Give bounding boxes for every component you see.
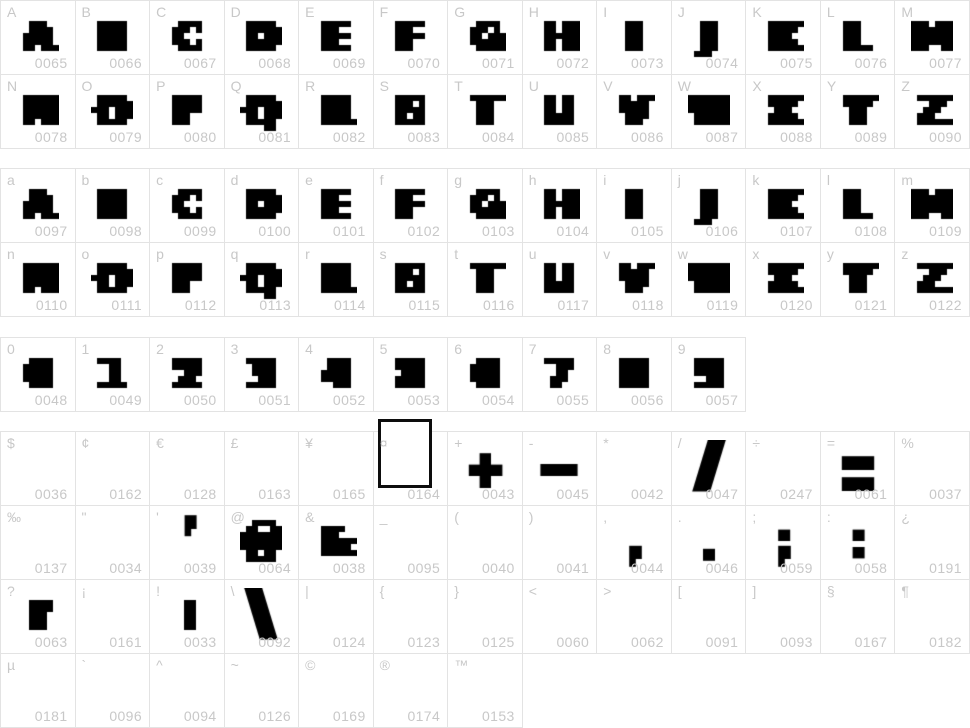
unicode-code-label: 0036 <box>35 486 68 502</box>
unicode-code-label: 0137 <box>35 560 68 576</box>
unicode-code-label: 0094 <box>184 708 217 724</box>
glyph-row: ?0063¡0161!0033\0092|0124{0123}0125<0060… <box>1 580 970 654</box>
notdef-box-icon <box>378 419 432 488</box>
unicode-code-label: 0043 <box>482 486 515 502</box>
glyph-cell-0163: £0163 <box>225 432 300 506</box>
character-label: b <box>82 171 90 189</box>
glyph-cell-0124: |0124 <box>299 580 374 654</box>
character-label: ‰ <box>7 508 21 526</box>
character-label: 3 <box>231 340 239 358</box>
glyph-row: $0036¢0162€0128£0163¥0165¤0164+0043-0045… <box>1 432 970 506</box>
glyph-cell-0104: h0104 <box>523 169 598 243</box>
character-label: € <box>156 434 164 452</box>
glyph-cell-0126: ~0126 <box>225 654 300 728</box>
glyph-cell-0065: A0065 <box>1 1 76 75</box>
unicode-code-label: 0153 <box>482 708 515 724</box>
glyph-group-symbols: $0036¢0162€0128£0163¥0165¤0164+0043-0045… <box>0 431 970 728</box>
glyph-cell-0088: X0088 <box>746 75 821 149</box>
unicode-code-label: 0128 <box>184 486 217 502</box>
unicode-code-label: 0046 <box>706 560 739 576</box>
character-label: j <box>678 171 681 189</box>
unicode-code-label: 0114 <box>334 297 366 313</box>
glyph-cell-0191: ¿0191 <box>895 506 970 580</box>
glyph-group-digits: 0004810049200503005140052500536005470055… <box>0 337 746 412</box>
glyph-cell-0067: C0067 <box>150 1 225 75</box>
character-label: n <box>7 245 15 263</box>
unicode-code-label: 0182 <box>929 634 962 650</box>
character-label: T <box>454 77 463 95</box>
glyph-cell-0048: 00048 <box>1 338 76 412</box>
character-label: e <box>305 171 313 189</box>
glyph-cell-0040: (0040 <box>448 506 523 580</box>
character-label: % <box>901 434 913 452</box>
character-label: f <box>380 171 384 189</box>
unicode-code-label: 0070 <box>407 55 440 71</box>
character-label: - <box>529 434 534 452</box>
unicode-code-label: 0163 <box>258 486 291 502</box>
character-label: R <box>305 77 315 95</box>
character-label: w <box>678 245 688 263</box>
glyph-cell-0051: 30051 <box>225 338 300 412</box>
character-label: a <box>7 171 15 189</box>
character-label: 9 <box>678 340 686 358</box>
glyph-cell-0114: r0114 <box>299 243 374 317</box>
unicode-code-label: 0104 <box>557 223 590 239</box>
glyph-cell-0079: O0079 <box>76 75 151 149</box>
unicode-code-label: 0041 <box>557 560 590 576</box>
character-label: S <box>380 77 389 95</box>
character-label: . <box>678 508 682 526</box>
unicode-code-label: 0054 <box>482 392 515 408</box>
character-label: { <box>380 582 385 600</box>
character-label: ™ <box>454 656 468 674</box>
character-label: N <box>7 77 17 95</box>
glyph-cell-0110: n0110 <box>1 243 76 317</box>
unicode-code-label: 0092 <box>258 634 291 650</box>
character-label: E <box>305 3 314 21</box>
glyph-cell-0116: t0116 <box>448 243 523 317</box>
character-label: = <box>827 434 835 452</box>
glyph-cell-0042: *0042 <box>597 432 672 506</box>
glyph-cell-0174: ®0174 <box>374 654 449 728</box>
font-character-map-page: { "page": { "background": "#ffffff", "bo… <box>0 0 970 727</box>
character-label: 8 <box>603 340 611 358</box>
character-label: r <box>305 245 310 263</box>
unicode-code-label: 0077 <box>929 55 962 71</box>
glyph-cell-0070: F0070 <box>374 1 449 75</box>
character-label: ~ <box>231 656 239 674</box>
unicode-code-label: 0090 <box>929 129 962 145</box>
unicode-code-label: 0045 <box>557 486 590 502</box>
character-label: x <box>752 245 759 263</box>
character-label: h <box>529 171 537 189</box>
glyph-cell-0107: k0107 <box>746 169 821 243</box>
glyph-cell-0092: \0092 <box>225 580 300 654</box>
character-label: F <box>380 3 389 21</box>
character-label: 6 <box>454 340 462 358</box>
unicode-code-label: 0167 <box>855 634 888 650</box>
glyph-cell-0087: W0087 <box>672 75 747 149</box>
unicode-code-label: 0066 <box>109 55 142 71</box>
character-label: * <box>603 434 608 452</box>
glyph-cell-0099: c0099 <box>150 169 225 243</box>
character-label: " <box>82 508 87 526</box>
glyph-cell-0105: i0105 <box>597 169 672 243</box>
glyph-cell-0128: €0128 <box>150 432 225 506</box>
glyph-cell-0121: y0121 <box>821 243 896 317</box>
glyph-cell-0059: ;0059 <box>746 506 821 580</box>
unicode-code-label: 0052 <box>333 392 366 408</box>
glyph-cell-0058: :0058 <box>821 506 896 580</box>
unicode-code-label: 0067 <box>184 55 217 71</box>
unicode-code-label: 0247 <box>780 486 813 502</box>
character-map: A0065B0066C0067D0068E0069F0070G0071H0072… <box>0 0 970 728</box>
glyph-cell-0074: J0074 <box>672 1 747 75</box>
unicode-code-label: 0100 <box>258 223 291 239</box>
unicode-code-label: 0033 <box>184 634 217 650</box>
glyph-group-lowercase: a0097b0098c0099d0100e0101f0102g0103h0104… <box>0 168 970 317</box>
unicode-code-label: 0125 <box>482 634 515 650</box>
unicode-code-label: 0065 <box>35 55 68 71</box>
unicode-code-label: 0115 <box>408 297 440 313</box>
character-label: M <box>901 3 913 21</box>
glyph-cell-0084: T0084 <box>448 75 523 149</box>
unicode-code-label: 0050 <box>184 392 217 408</box>
character-label: l <box>827 171 830 189</box>
unicode-code-label: 0123 <box>407 634 440 650</box>
character-label: A <box>7 3 16 21</box>
character-label: ¤ <box>380 434 388 452</box>
glyph-row: n0110o0111p0112q0113r0114s0115t0116u0117… <box>1 243 970 317</box>
unicode-code-label: 0098 <box>109 223 142 239</box>
glyph-cell-0041: )0041 <box>523 506 598 580</box>
glyph-cell-0082: R0082 <box>299 75 374 149</box>
unicode-code-label: 0059 <box>780 560 813 576</box>
glyph-cell-0113: q0113 <box>225 243 300 317</box>
glyph-cell-0093: ]0093 <box>746 580 821 654</box>
character-label: p <box>156 245 164 263</box>
character-label: £ <box>231 434 239 452</box>
unicode-code-label: 0099 <box>184 223 217 239</box>
character-label: | <box>305 582 309 600</box>
character-label: X <box>752 77 761 95</box>
character-label: H <box>529 3 539 21</box>
glyph-cell-0052: 40052 <box>299 338 374 412</box>
character-label: ® <box>380 656 390 674</box>
glyph-cell-0080: P0080 <box>150 75 225 149</box>
glyph-cell-0112: p0112 <box>150 243 225 317</box>
glyph-cell-0161: ¡0161 <box>76 580 151 654</box>
character-label: , <box>603 508 607 526</box>
character-label: : <box>827 508 831 526</box>
character-label: ) <box>529 508 534 526</box>
glyph-cell-0247: ÷0247 <box>746 432 821 506</box>
glyph-cell-0077: M0077 <box>895 1 970 75</box>
unicode-code-label: 0082 <box>333 129 366 145</box>
character-label: ¡ <box>82 582 87 600</box>
unicode-code-label: 0108 <box>855 223 888 239</box>
glyph-cell-0118: v0118 <box>597 243 672 317</box>
character-label: o <box>82 245 90 263</box>
character-label: U <box>529 77 539 95</box>
glyph-cell-0096: `0096 <box>76 654 151 728</box>
glyph-cell-0091: [0091 <box>672 580 747 654</box>
glyph-cell-0111: o0111 <box>76 243 151 317</box>
unicode-code-label: 0106 <box>706 223 739 239</box>
glyph-cell-0039: '0039 <box>150 506 225 580</box>
character-label: ' <box>156 508 159 526</box>
glyph-cell-0069: E0069 <box>299 1 374 75</box>
glyph-cell-0044: ,0044 <box>597 506 672 580</box>
character-label: q <box>231 245 239 263</box>
unicode-code-label: 0116 <box>483 297 515 313</box>
character-label: z <box>901 245 908 263</box>
glyph-cell-0071: G0071 <box>448 1 523 75</box>
character-label: + <box>454 434 462 452</box>
glyph-cell-0081: Q0081 <box>225 75 300 149</box>
glyph-cell-0057: 90057 <box>672 338 747 412</box>
character-label: µ <box>7 656 15 674</box>
unicode-code-label: 0051 <box>258 392 291 408</box>
glyph-cell-0115: s0115 <box>374 243 449 317</box>
glyph-cell-0066: B0066 <box>76 1 151 75</box>
unicode-code-label: 0174 <box>407 708 440 724</box>
glyph-cell-0054: 60054 <box>448 338 523 412</box>
unicode-code-label: 0071 <box>482 55 515 71</box>
unicode-code-label: 0076 <box>855 55 888 71</box>
unicode-code-label: 0044 <box>631 560 664 576</box>
character-label: Z <box>901 77 910 95</box>
unicode-code-label: 0112 <box>185 297 217 313</box>
unicode-code-label: 0069 <box>333 55 366 71</box>
unicode-code-label: 0062 <box>631 634 664 650</box>
character-label: J <box>678 3 685 21</box>
unicode-code-label: 0164 <box>407 486 440 502</box>
unicode-code-label: 0058 <box>855 560 888 576</box>
character-label: D <box>231 3 241 21</box>
glyph-cell-0153: ™0153 <box>448 654 523 728</box>
character-label: ¿ <box>901 508 910 526</box>
glyph-cell-0103: g0103 <box>448 169 523 243</box>
character-label: d <box>231 171 239 189</box>
glyph-cell-0053: 50053 <box>374 338 449 412</box>
unicode-code-label: 0073 <box>631 55 664 71</box>
character-label: c <box>156 171 163 189</box>
character-label: W <box>678 77 691 95</box>
unicode-code-label: 0048 <box>35 392 68 408</box>
character-label: O <box>82 77 93 95</box>
character-label: $ <box>7 434 15 452</box>
glyph-cell-0167: §0167 <box>821 580 896 654</box>
glyph-row: a0097b0098c0099d0100e0101f0102g0103h0104… <box>1 169 970 243</box>
glyph-cell-0098: b0098 <box>76 169 151 243</box>
unicode-code-label: 0056 <box>631 392 664 408</box>
character-label: ¥ <box>305 434 313 452</box>
unicode-code-label: 0042 <box>631 486 664 502</box>
glyph-cell-0060: <0060 <box>523 580 598 654</box>
glyph-cell-0061: =0061 <box>821 432 896 506</box>
character-label: i <box>603 171 606 189</box>
unicode-code-label: 0119 <box>707 297 739 313</box>
character-label: @ <box>231 508 245 526</box>
glyph-cell-0043: +0043 <box>448 432 523 506</box>
unicode-code-label: 0055 <box>557 392 590 408</box>
glyph-cell-0169: ©0169 <box>299 654 374 728</box>
unicode-code-label: 0096 <box>109 708 142 724</box>
unicode-code-label: 0093 <box>780 634 813 650</box>
glyph-cell-0033: !0033 <box>150 580 225 654</box>
character-label: ` <box>82 656 87 674</box>
glyph-cell-0049: 10049 <box>76 338 151 412</box>
glyph-cell-0090: Z0090 <box>895 75 970 149</box>
glyph-cell-0106: j0106 <box>672 169 747 243</box>
glyph-cell-0036: $0036 <box>1 432 76 506</box>
glyph-cell-0089: Y0089 <box>821 75 896 149</box>
unicode-code-label: 0034 <box>109 560 142 576</box>
glyph-cell-0034: "0034 <box>76 506 151 580</box>
unicode-code-label: 0113 <box>259 297 291 313</box>
character-label: V <box>603 77 612 95</box>
unicode-code-label: 0105 <box>631 223 664 239</box>
glyph-cell-0086: V0086 <box>597 75 672 149</box>
unicode-code-label: 0191 <box>929 560 962 576</box>
character-label: [ <box>678 582 682 600</box>
unicode-code-label: 0072 <box>557 55 590 71</box>
character-label: ? <box>7 582 15 600</box>
glyph-cell-0055: 70055 <box>523 338 598 412</box>
glyph-cell-0162: ¢0162 <box>76 432 151 506</box>
unicode-code-label: 0074 <box>706 55 739 71</box>
glyph-cell-0076: L0076 <box>821 1 896 75</box>
character-label: v <box>603 245 610 263</box>
character-label: Q <box>231 77 242 95</box>
unicode-code-label: 0040 <box>482 560 515 576</box>
character-label: Y <box>827 77 836 95</box>
character-label: C <box>156 3 166 21</box>
unicode-code-label: 0089 <box>855 129 888 145</box>
glyph-cell-0109: m0109 <box>895 169 970 243</box>
character-label: \ <box>231 582 235 600</box>
character-label: t <box>454 245 458 263</box>
glyph-cell-0119: w0119 <box>672 243 747 317</box>
glyph-cell-0123: {0123 <box>374 580 449 654</box>
character-label: > <box>603 582 611 600</box>
character-label: K <box>752 3 761 21</box>
glyph-cell-0102: f0102 <box>374 169 449 243</box>
glyph-cell-0164: ¤0164 <box>374 432 449 506</box>
glyph-cell-0068: D0068 <box>225 1 300 75</box>
glyph-cell-0101: e0101 <box>299 169 374 243</box>
character-label: § <box>827 582 835 600</box>
glyph-cell-0094: ^0094 <box>150 654 225 728</box>
unicode-code-label: 0110 <box>36 297 68 313</box>
character-label: 5 <box>380 340 388 358</box>
unicode-code-label: 0053 <box>407 392 440 408</box>
glyph-cell-0182: ¶0182 <box>895 580 970 654</box>
character-label: 2 <box>156 340 164 358</box>
character-label: 0 <box>7 340 15 358</box>
glyph-cell-0108: l0108 <box>821 169 896 243</box>
character-label: B <box>82 3 91 21</box>
glyph-row: ‰0137"0034'0039@0064&0038_0095(0040)0041… <box>1 506 970 580</box>
unicode-code-label: 0081 <box>258 129 291 145</box>
unicode-code-label: 0111 <box>111 297 142 313</box>
unicode-code-label: 0087 <box>706 129 739 145</box>
character-label: I <box>603 3 607 21</box>
character-label: s <box>380 245 387 263</box>
character-label: < <box>529 582 537 600</box>
glyph-cell-0095: _0095 <box>374 506 449 580</box>
unicode-code-label: 0120 <box>780 297 813 313</box>
glyph-cell-0062: >0062 <box>597 580 672 654</box>
unicode-code-label: 0080 <box>184 129 217 145</box>
glyph-cell-0122: z0122 <box>895 243 970 317</box>
character-label: ¢ <box>82 434 90 452</box>
unicode-code-label: 0109 <box>929 223 962 239</box>
character-label: L <box>827 3 835 21</box>
unicode-code-label: 0085 <box>557 129 590 145</box>
glyph-cell-0181: µ0181 <box>1 654 76 728</box>
character-label: _ <box>380 508 388 526</box>
unicode-code-label: 0107 <box>780 223 813 239</box>
unicode-code-label: 0037 <box>929 486 962 502</box>
character-label: 7 <box>529 340 537 358</box>
unicode-code-label: 0047 <box>706 486 739 502</box>
character-label: ^ <box>156 656 163 674</box>
character-label: P <box>156 77 165 95</box>
unicode-code-label: 0181 <box>35 708 68 724</box>
unicode-code-label: 0088 <box>780 129 813 145</box>
glyph-cell-0125: }0125 <box>448 580 523 654</box>
unicode-code-label: 0095 <box>407 560 440 576</box>
character-label: & <box>305 508 314 526</box>
unicode-code-label: 0038 <box>333 560 366 576</box>
character-label: } <box>454 582 459 600</box>
glyph-group-uppercase: A0065B0066C0067D0068E0069F0070G0071H0072… <box>0 0 970 149</box>
unicode-code-label: 0068 <box>258 55 291 71</box>
unicode-code-label: 0103 <box>482 223 515 239</box>
unicode-code-label: 0064 <box>258 560 291 576</box>
character-label: y <box>827 245 834 263</box>
glyph-row: N0078O0079P0080Q0081R0082S0083T0084U0085… <box>1 75 970 149</box>
unicode-code-label: 0121 <box>855 297 888 313</box>
glyph-row: µ0181`0096^0094~0126©0169®0174™0153 <box>1 654 970 728</box>
glyph-cell-0137: ‰0137 <box>1 506 76 580</box>
glyph-cell-0085: U0085 <box>523 75 598 149</box>
character-label: © <box>305 656 315 674</box>
unicode-code-label: 0057 <box>706 392 739 408</box>
character-label: G <box>454 3 465 21</box>
glyph-cell-0037: %0037 <box>895 432 970 506</box>
character-label: ; <box>752 508 756 526</box>
character-label: ¶ <box>901 582 909 600</box>
unicode-code-label: 0102 <box>407 223 440 239</box>
unicode-code-label: 0039 <box>184 560 217 576</box>
glyph-cell-0073: I0073 <box>597 1 672 75</box>
unicode-code-label: 0091 <box>706 634 739 650</box>
unicode-code-label: 0063 <box>35 634 68 650</box>
unicode-code-label: 0117 <box>558 297 590 313</box>
character-label: u <box>529 245 537 263</box>
glyph-cell-0063: ?0063 <box>1 580 76 654</box>
glyph-cell-0072: H0072 <box>523 1 598 75</box>
character-label: ! <box>156 582 160 600</box>
unicode-code-label: 0165 <box>333 486 366 502</box>
glyph-cell-0165: ¥0165 <box>299 432 374 506</box>
character-label: 1 <box>82 340 90 358</box>
unicode-code-label: 0124 <box>333 634 366 650</box>
unicode-code-label: 0126 <box>258 708 291 724</box>
